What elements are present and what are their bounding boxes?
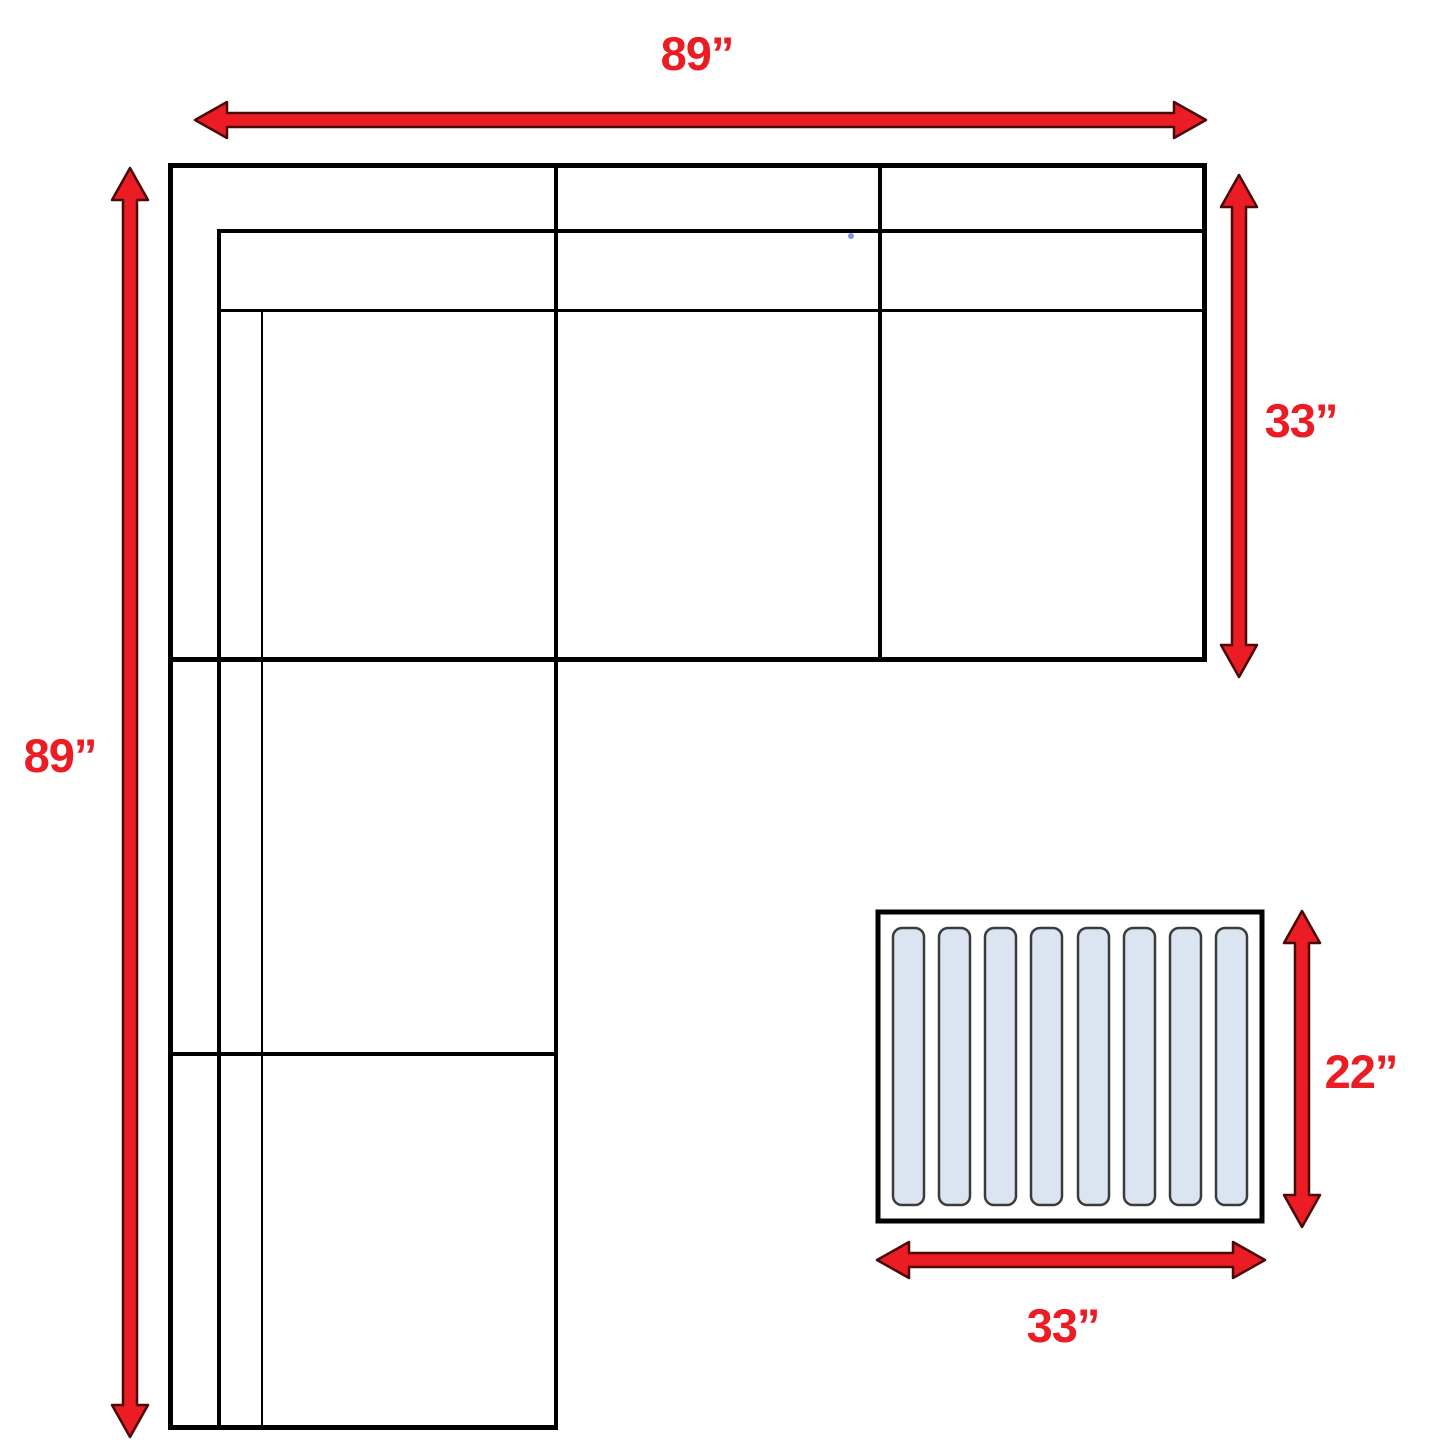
ottoman-slat (1078, 928, 1109, 1205)
ottoman-slat (1124, 928, 1155, 1205)
sofa-left-arm-line (217, 229, 221, 1430)
ottoman-frame (878, 912, 1262, 1221)
sofa-depth-arrow (1221, 175, 1257, 677)
sofa-top-view (168, 163, 1207, 1430)
sofa-back-cushion-line (217, 309, 1207, 312)
ottoman-width-arrow (877, 1242, 1265, 1278)
sofa-seat-divider-2 (878, 163, 882, 662)
ottoman-width-dimension-label: 33” (1027, 1299, 1100, 1352)
sofa-width-dimension-label: 89” (661, 27, 734, 80)
sofa-top-edge (168, 163, 1207, 168)
ottoman-slat (1216, 928, 1247, 1205)
sofa-width-arrow (195, 102, 1206, 138)
chaise-seat-divider (168, 1052, 558, 1056)
chaise-bottom-edge (168, 1425, 558, 1430)
ottoman-depth-dimension-label: 22” (1325, 1045, 1398, 1098)
ottoman-top-view (878, 912, 1262, 1221)
ottoman-slat (939, 928, 970, 1205)
sofa-depth-dimension-label: 33” (1265, 394, 1338, 447)
sectional-dimension-diagram: 89” 89” 33” 22” 33” (0, 0, 1445, 1445)
ottoman-slat (985, 928, 1016, 1205)
sofa-backrest-line (217, 229, 1207, 233)
dimension-arrows (112, 102, 1320, 1437)
sofa-right-edge (1202, 163, 1207, 662)
blue-speck (848, 233, 854, 239)
diagram-canvas: 89” 89” 33” 22” 33” (0, 0, 1445, 1445)
sofa-seat-front-edge (168, 657, 1207, 662)
sofa-seat-divider-1 (554, 163, 558, 1430)
sofa-left-arm-cushion-line (261, 309, 263, 1430)
ottoman-depth-arrow (1284, 911, 1320, 1227)
sofa-left-edge (168, 163, 173, 1430)
ottoman-slat (1170, 928, 1201, 1205)
sofa-length-arrow (112, 168, 148, 1437)
sofa-length-dimension-label: 89” (24, 729, 97, 782)
ottoman-slat (1031, 928, 1062, 1205)
ottoman-slat (893, 928, 924, 1205)
